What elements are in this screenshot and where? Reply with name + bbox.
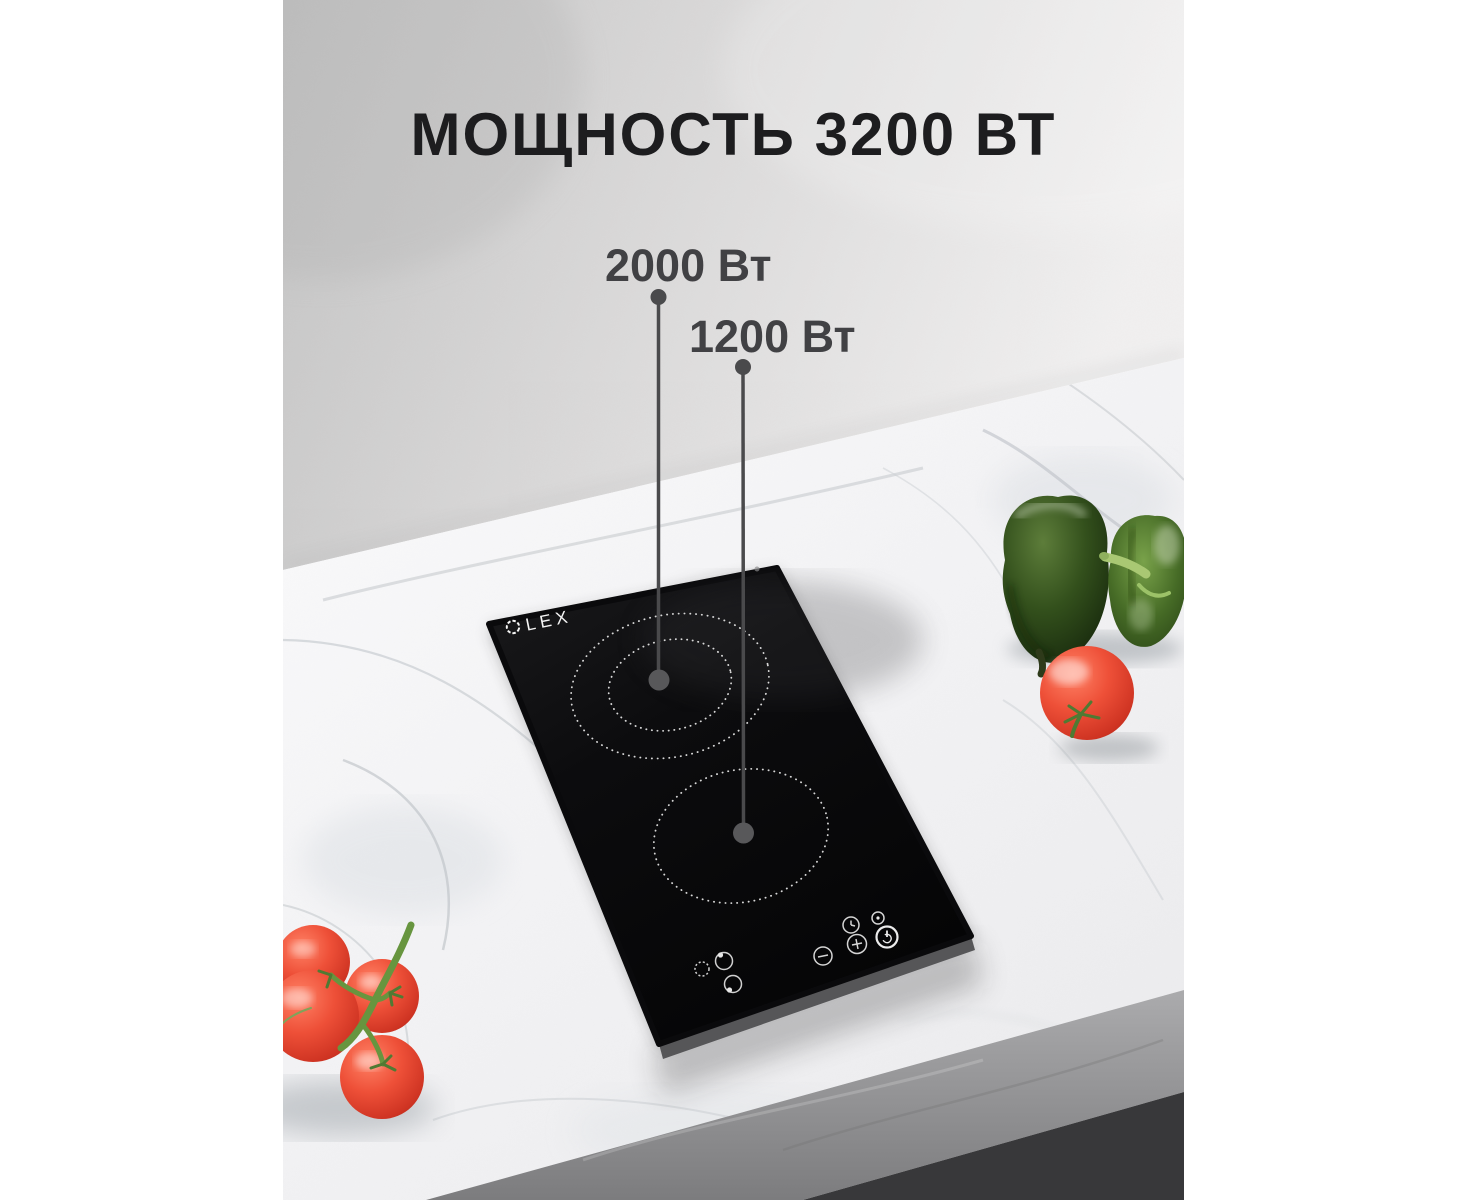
callout-label-2000: 2000 Вт <box>605 240 772 292</box>
callout-dot-burner-2000 <box>649 670 670 691</box>
product-banner: LEX <box>0 0 1467 1200</box>
tomato-highlight <box>1049 659 1089 685</box>
cluster-tomato <box>340 1035 424 1119</box>
page-title: МОЩНОСТЬ 3200 ВТ <box>283 100 1184 169</box>
kitchen-scene: LEX <box>283 0 1184 1200</box>
pepper-left-stem <box>1039 652 1043 674</box>
kitchen-photo: LEX <box>283 0 1184 1200</box>
tomato-body <box>1040 646 1134 740</box>
tomato-shadow <box>1059 735 1159 761</box>
callout-dot-burner-1200 <box>733 823 754 844</box>
callout-label-1200: 1200 Вт <box>689 311 856 363</box>
callout-line-1200 <box>743 367 744 833</box>
cert-mark <box>755 567 760 572</box>
